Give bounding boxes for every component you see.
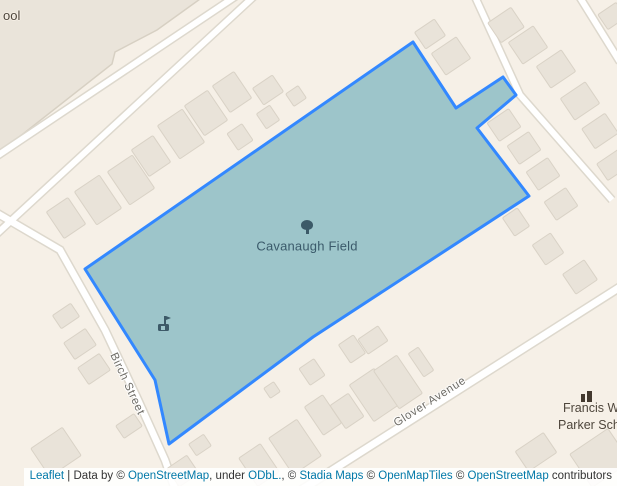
building (582, 113, 617, 149)
building (536, 50, 575, 88)
attribution-text: © (363, 470, 378, 482)
attribution-text: contributors (549, 470, 612, 482)
attribution-text: © (453, 470, 468, 482)
building (264, 382, 281, 399)
building (64, 328, 97, 359)
building (526, 158, 560, 191)
building (507, 132, 541, 165)
attribution-text: , © (281, 470, 299, 482)
attribution-link[interactable]: ODbL. (248, 470, 281, 482)
building (78, 353, 111, 384)
building (560, 82, 599, 120)
building (597, 149, 617, 180)
building (544, 188, 578, 221)
building (227, 124, 253, 151)
building (414, 19, 445, 49)
building (563, 260, 598, 294)
attribution-link[interactable]: Stadia Maps (299, 470, 363, 482)
building (256, 105, 279, 129)
building (299, 359, 325, 386)
attribution-link[interactable]: Leaflet (30, 470, 65, 482)
building (116, 414, 143, 439)
building (52, 303, 79, 329)
map-tiles (0, 0, 617, 486)
building (532, 233, 564, 265)
building (46, 197, 85, 238)
building (189, 434, 212, 456)
building (286, 86, 307, 107)
building (408, 347, 434, 377)
building (252, 75, 283, 105)
attribution-bar: Leaflet | Data by © OpenStreetMap, under… (24, 468, 617, 486)
building (431, 37, 470, 75)
map-canvas[interactable]: Birch Street Glover Avenue Cavanaugh Fie… (0, 0, 617, 486)
attribution-text: | Data by © (64, 470, 128, 482)
building (269, 419, 322, 474)
attribution-link[interactable]: OpenStreetMap (468, 470, 549, 482)
attribution-link[interactable]: OpenMapTiles (378, 470, 452, 482)
attribution-text: , under (209, 470, 248, 482)
attribution-link[interactable]: OpenStreetMap (128, 470, 209, 482)
building (515, 433, 557, 472)
